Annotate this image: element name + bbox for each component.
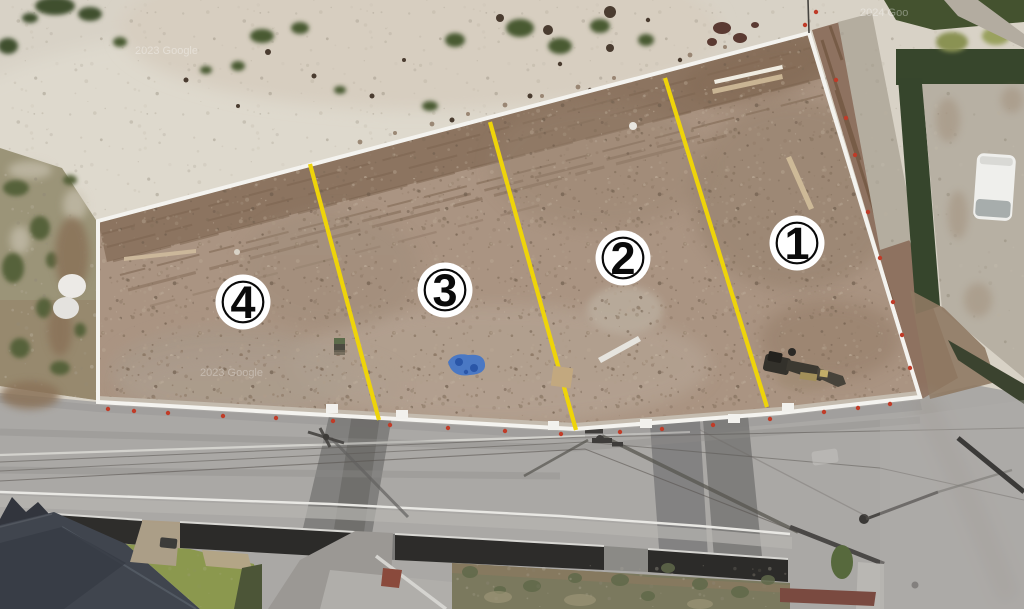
svg-text:3: 3 bbox=[432, 265, 457, 316]
svg-text:1: 1 bbox=[784, 218, 809, 269]
svg-text:2023 Google: 2023 Google bbox=[200, 367, 263, 379]
svg-text:2024 Goo: 2024 Goo bbox=[860, 7, 908, 19]
svg-text:4: 4 bbox=[230, 277, 255, 328]
svg-text:2: 2 bbox=[610, 233, 635, 284]
svg-text:2023 Google: 2023 Google bbox=[135, 45, 198, 57]
